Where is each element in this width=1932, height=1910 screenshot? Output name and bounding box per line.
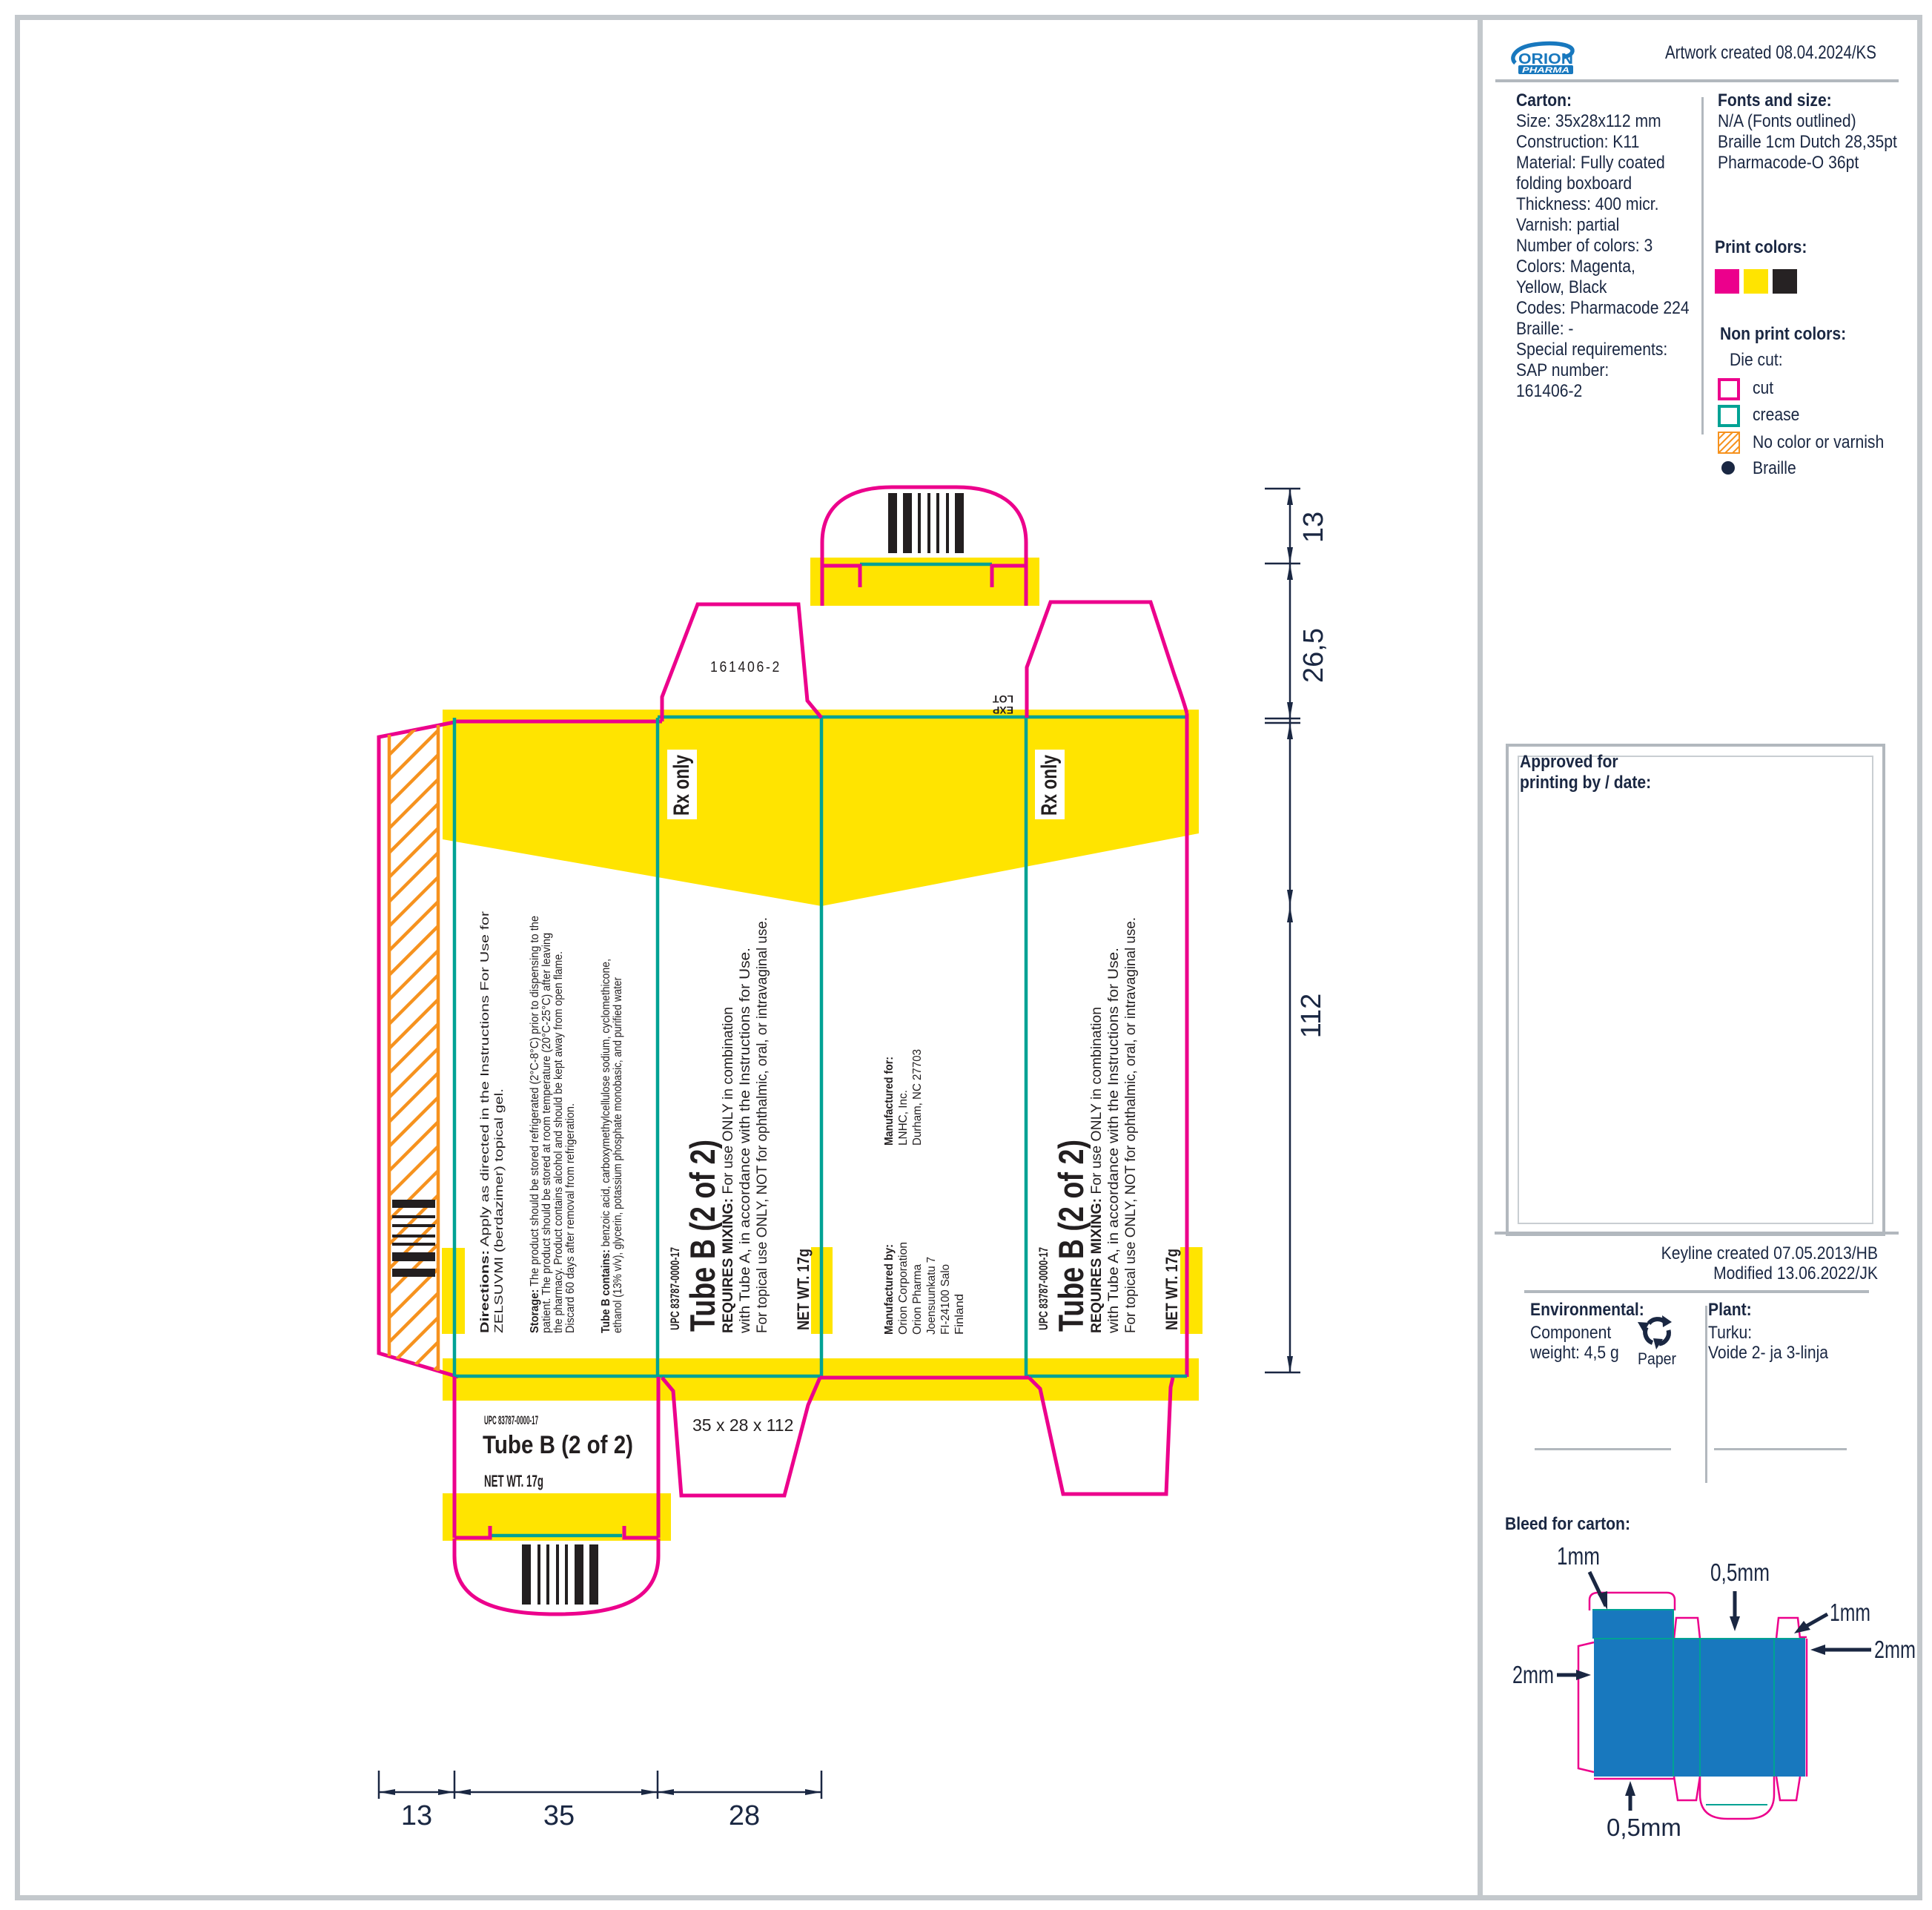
svg-text:26,5: 26,5 xyxy=(1298,628,1329,683)
svg-text:Rx only: Rx only xyxy=(1037,755,1062,816)
svg-text:Tube B (2 of 2): Tube B (2 of 2) xyxy=(483,1431,633,1459)
svg-text:ZELSUVMI (berdazimer) topical: ZELSUVMI (berdazimer) topical gel. xyxy=(493,1088,506,1333)
svg-text:with Tube A, in accordance wit: with Tube A, in accordance with the Inst… xyxy=(1106,948,1122,1334)
svg-text:Orion Pharma: Orion Pharma xyxy=(911,1264,924,1335)
svg-text:NET WT. 17g: NET WT. 17g xyxy=(484,1472,543,1490)
svg-text:PHARMA: PHARMA xyxy=(1522,66,1569,75)
svg-text:FI-24100 Salo: FI-24100 Salo xyxy=(939,1264,952,1335)
svg-text:UPC 83787-0000-17: UPC 83787-0000-17 xyxy=(1036,1247,1051,1330)
svg-text:Orion Corporation: Orion Corporation xyxy=(897,1242,910,1335)
svg-text:35: 35 xyxy=(543,1800,575,1831)
svg-text:0,5mm: 0,5mm xyxy=(1607,1814,1681,1841)
svg-text:Discard 60 days after removal: Discard 60 days after removal from refri… xyxy=(564,1103,577,1333)
svg-text:Manufactured by:: Manufactured by: xyxy=(883,1244,896,1335)
svg-text:Paper: Paper xyxy=(1638,1349,1676,1368)
svg-text:2mm: 2mm xyxy=(1874,1636,1916,1663)
svg-text:UPC 83787-0000-17: UPC 83787-0000-17 xyxy=(668,1247,682,1330)
svg-text:Manufactured for:: Manufactured for: xyxy=(883,1057,896,1146)
svg-text:Joensuunkatu 7: Joensuunkatu 7 xyxy=(925,1257,938,1335)
svg-text:LNHC, Inc.: LNHC, Inc. xyxy=(897,1090,910,1146)
svg-text:2mm: 2mm xyxy=(1512,1661,1554,1688)
svg-text:13: 13 xyxy=(1298,512,1329,543)
svg-text:REQUIRES MIXING: For use ONLY: REQUIRES MIXING: For use ONLY in combina… xyxy=(721,1007,736,1333)
svg-text:Rx only: Rx only xyxy=(669,755,694,816)
svg-text:Finland: Finland xyxy=(953,1294,966,1335)
svg-text:For topical use ONLY, NOT for: For topical use ONLY, NOT for ophthalmic… xyxy=(1123,917,1139,1333)
svg-text:Durham, NC 27703: Durham, NC 27703 xyxy=(911,1049,924,1146)
svg-text:Directions: Apply as directed: Directions: Apply as directed in the Ins… xyxy=(479,911,492,1333)
svg-text:LOT: LOT xyxy=(993,693,1013,705)
svg-text:1mm: 1mm xyxy=(1830,1599,1870,1626)
svg-text:112: 112 xyxy=(1296,994,1327,1039)
svg-text:patient. The product should be: patient. The product should be stored at… xyxy=(540,933,553,1333)
svg-text:with Tube A, in accordance wit: with Tube A, in accordance with the Inst… xyxy=(738,948,753,1334)
svg-text:161406-2: 161406-2 xyxy=(710,659,781,675)
svg-text:35 x 28 x 112: 35 x 28 x 112 xyxy=(692,1415,793,1435)
svg-text:28: 28 xyxy=(729,1800,760,1831)
svg-text:EXP: EXP xyxy=(993,704,1013,716)
svg-text:NET WT. 17g: NET WT. 17g xyxy=(1162,1249,1181,1330)
svg-text:For topical use ONLY, NOT for: For topical use ONLY, NOT for ophthalmic… xyxy=(755,917,770,1333)
svg-text:Tube B (2 of 2): Tube B (2 of 2) xyxy=(683,1140,722,1332)
svg-text:0,5mm: 0,5mm xyxy=(1710,1559,1770,1586)
svg-text:ORION: ORION xyxy=(1518,51,1573,67)
svg-text:Storage: The product should be: Storage: The product should be stored re… xyxy=(529,916,541,1333)
svg-text:Tube B contains: benzoic acid,: Tube B contains: benzoic acid, carboxyme… xyxy=(600,959,612,1333)
svg-text:REQUIRES MIXING: For use ONLY: REQUIRES MIXING: For use ONLY in combina… xyxy=(1089,1007,1105,1333)
svg-text:1mm: 1mm xyxy=(1557,1542,1600,1570)
svg-text:Tube B (2 of 2): Tube B (2 of 2) xyxy=(1051,1140,1091,1332)
svg-text:NET WT. 17g: NET WT. 17g xyxy=(794,1249,813,1330)
svg-text:UPC 83787-0000-17: UPC 83787-0000-17 xyxy=(484,1413,538,1427)
svg-text:the pharmacy. Product contains: the pharmacy. Product contains alcohol a… xyxy=(552,951,565,1333)
svg-text:ethanol (13% v/v), glycerin, p: ethanol (13% v/v), glycerin, potassium p… xyxy=(612,977,624,1333)
svg-text:13: 13 xyxy=(401,1800,432,1831)
